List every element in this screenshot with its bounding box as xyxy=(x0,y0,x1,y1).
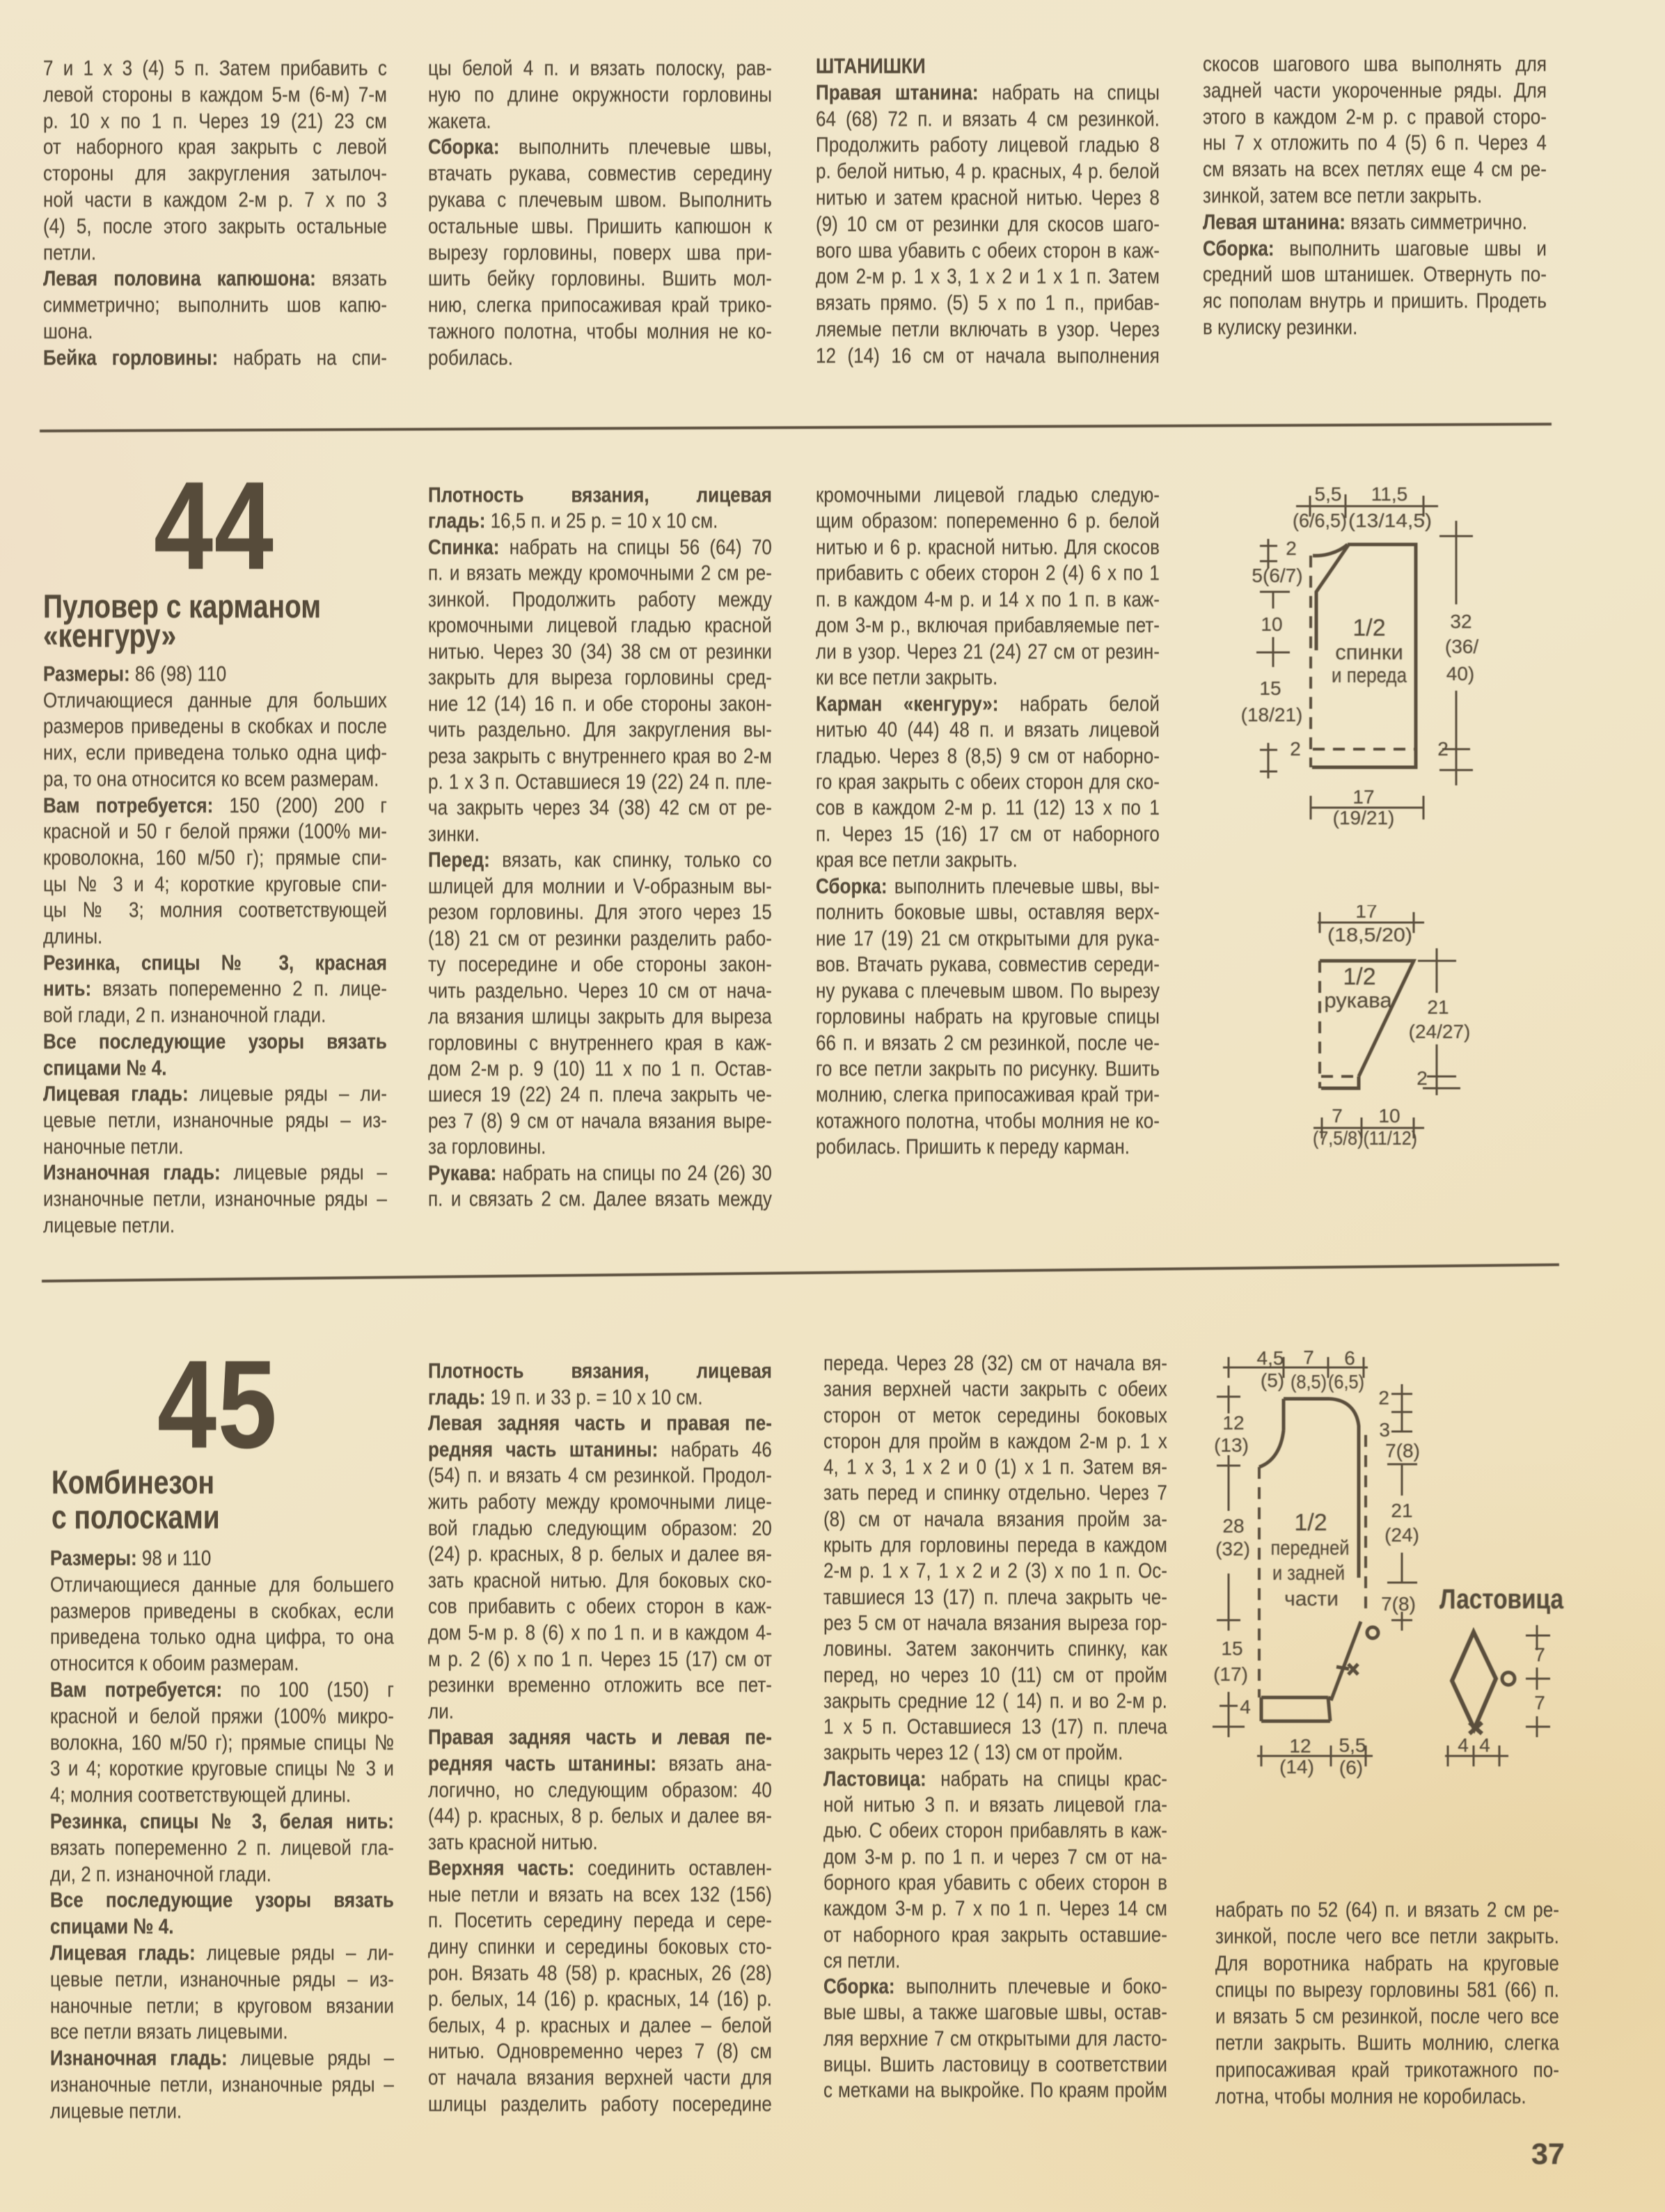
svg-text:(13/14,5): (13/14,5) xyxy=(1348,510,1432,531)
svg-text:5,5: 5,5 xyxy=(1339,1734,1366,1756)
svg-text:17: 17 xyxy=(1352,786,1374,808)
svg-text:спинки: спинки xyxy=(1335,640,1403,664)
svg-text:(8,5): (8,5) xyxy=(1291,1371,1327,1393)
svg-text:(18/21): (18/21) xyxy=(1241,704,1303,725)
svg-text:(24): (24) xyxy=(1384,1524,1419,1546)
svg-text:15: 15 xyxy=(1259,677,1281,699)
svg-text:21: 21 xyxy=(1391,1500,1412,1521)
svg-text:21: 21 xyxy=(1427,996,1449,1018)
svg-text:(32): (32) xyxy=(1215,1538,1250,1560)
svg-text:1/2: 1/2 xyxy=(1352,615,1385,641)
svg-text:2: 2 xyxy=(1286,538,1297,559)
svg-text:2: 2 xyxy=(1437,738,1449,760)
svg-text:7: 7 xyxy=(1534,1644,1545,1665)
svg-text:Ластовица: Ластовица xyxy=(1439,1584,1564,1615)
svg-text:(5): (5) xyxy=(1261,1370,1284,1391)
svg-text:7: 7 xyxy=(1534,1692,1545,1713)
svg-text:(6): (6) xyxy=(1339,1757,1363,1778)
svg-text:и переда: и переда xyxy=(1332,663,1407,687)
svg-text:4,5: 4,5 xyxy=(1257,1347,1284,1369)
svg-text:5,5: 5,5 xyxy=(1315,483,1342,505)
svg-text:4: 4 xyxy=(1458,1734,1469,1756)
svg-text:4: 4 xyxy=(1479,1734,1490,1756)
svg-text:3: 3 xyxy=(1379,1419,1390,1441)
svg-text:32: 32 xyxy=(1450,611,1471,632)
svg-text:12: 12 xyxy=(1222,1412,1244,1434)
svg-text:(24/27): (24/27) xyxy=(1409,1021,1471,1042)
svg-text:(6/6,5): (6/6,5) xyxy=(1293,510,1347,531)
svg-text:7(8): 7(8) xyxy=(1381,1593,1416,1615)
svg-text:5(6/7): 5(6/7) xyxy=(1252,565,1302,586)
svg-text:15: 15 xyxy=(1221,1638,1242,1659)
svg-text:10: 10 xyxy=(1378,1105,1400,1127)
svg-text:и задней: и задней xyxy=(1272,1562,1345,1585)
svg-text:(6,5): (6,5) xyxy=(1328,1371,1364,1393)
svg-text:1/2: 1/2 xyxy=(1343,964,1375,990)
svg-text:6: 6 xyxy=(1344,1347,1355,1369)
svg-text:(36/: (36/ xyxy=(1445,636,1478,657)
svg-text:(19/21): (19/21) xyxy=(1333,807,1395,829)
svg-text:(13): (13) xyxy=(1214,1434,1249,1456)
svg-text:7: 7 xyxy=(1303,1347,1314,1368)
svg-text:11,5: 11,5 xyxy=(1371,483,1407,505)
svg-text:(14): (14) xyxy=(1279,1756,1314,1778)
svg-text:28: 28 xyxy=(1222,1515,1244,1537)
svg-text:передней: передней xyxy=(1271,1537,1350,1560)
svg-text:17: 17 xyxy=(1355,905,1377,922)
svg-text:4: 4 xyxy=(1240,1696,1251,1718)
svg-text:(7,5/8)(11/12): (7,5/8)(11/12) xyxy=(1313,1127,1417,1149)
svg-text:12: 12 xyxy=(1289,1735,1311,1757)
svg-text:рукава: рукава xyxy=(1324,988,1392,1012)
svg-text:(17): (17) xyxy=(1213,1663,1248,1685)
svg-text:части: части xyxy=(1284,1587,1339,1610)
svg-text:(18,5/20): (18,5/20) xyxy=(1327,924,1412,946)
svg-text:10: 10 xyxy=(1261,613,1282,635)
svg-text:7(8): 7(8) xyxy=(1385,1440,1420,1461)
svg-text:2: 2 xyxy=(1417,1067,1428,1089)
svg-text:2: 2 xyxy=(1290,738,1301,760)
svg-text:1/2: 1/2 xyxy=(1294,1509,1327,1536)
svg-text:2: 2 xyxy=(1378,1387,1389,1409)
svg-text:7: 7 xyxy=(1332,1105,1343,1127)
svg-text:40): 40) xyxy=(1446,663,1474,684)
